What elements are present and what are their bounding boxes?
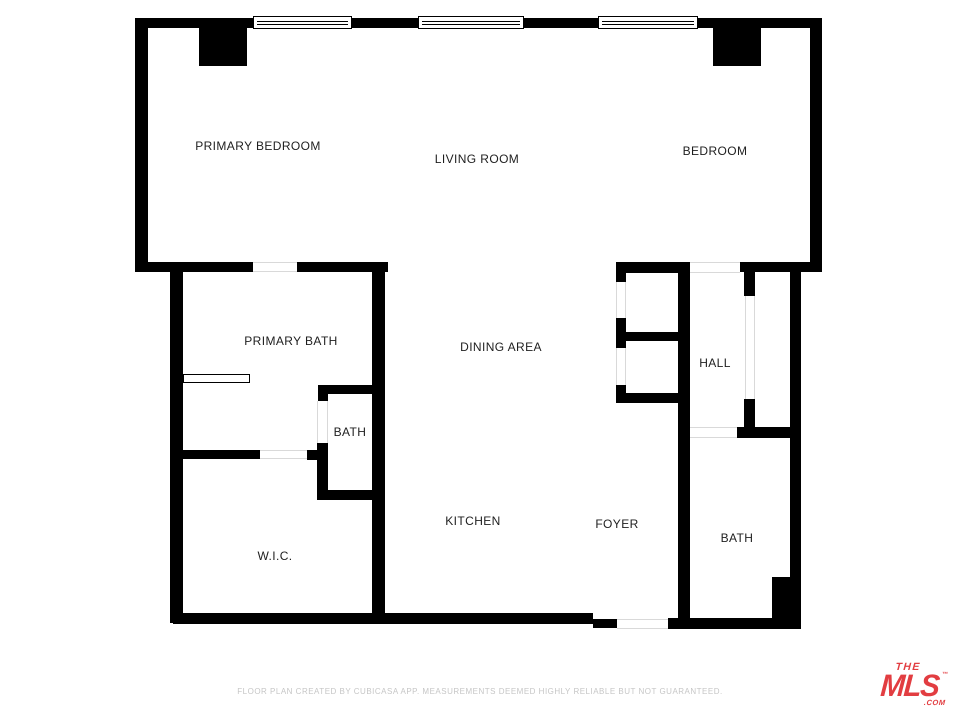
top-wall-seg3 <box>524 18 598 28</box>
room-label-primary-bath: PRIMARY BATH <box>244 334 338 348</box>
right-outer-wall <box>810 18 822 271</box>
primary-bath-bottom-seg <box>183 450 260 459</box>
mls-logo-tm: ™ <box>942 672 948 678</box>
central-vertical-wall <box>372 262 385 623</box>
hall-jamb-bottom <box>744 399 755 430</box>
room-label-primary-bedroom: PRIMARY BEDROOM <box>195 139 321 153</box>
window-bedroom-pane <box>602 21 694 22</box>
primary-bath-top-seg1 <box>135 262 253 272</box>
door-small-bath <box>317 401 328 443</box>
small-bath-top-wall <box>318 385 385 394</box>
top-wall-seg4 <box>698 18 822 28</box>
room-label-hall: HALL <box>699 356 731 370</box>
mls-logo-mls: MLS <box>880 670 940 701</box>
window-primary-bedroom <box>253 16 352 29</box>
door-primary-bath <box>253 262 297 272</box>
bath-top-wall <box>737 427 801 438</box>
entry-door-gap <box>617 619 668 629</box>
door-closet-lower <box>616 348 626 385</box>
window-primary-bedroom-pane <box>257 24 348 25</box>
pillar-bedroom <box>713 28 761 66</box>
window-primary-bedroom-pane <box>257 21 348 22</box>
closet-bottom-wall <box>616 393 678 403</box>
room-label-foyer: FOYER <box>595 517 638 531</box>
room-label-bath: BATH <box>721 531 754 545</box>
floor-plan-canvas: PRIMARY BEDROOMLIVING ROOMBEDROOMPRIMARY… <box>0 0 960 720</box>
closet-left-seg1 <box>616 262 626 282</box>
window-living-room <box>418 16 524 29</box>
bottom-wall-step <box>593 619 617 628</box>
room-label-bedroom: BEDROOM <box>683 144 748 158</box>
inner-right-wall <box>790 262 801 629</box>
closet-divider-wall <box>620 332 690 341</box>
vanity <box>183 374 250 383</box>
room-label-kitchen: KITCHEN <box>445 514 500 528</box>
bottom-wall-left <box>173 613 593 624</box>
door-closet-upper <box>616 282 626 318</box>
window-bedroom <box>598 16 698 29</box>
disclaimer-text: FLOOR PLAN CREATED BY CUBICASA APP. MEAS… <box>0 687 960 696</box>
bath-plumbing-block <box>772 577 790 629</box>
window-bedroom-pane <box>602 24 694 25</box>
floor-plan-page: PRIMARY BEDROOMLIVING ROOMBEDROOMPRIMARY… <box>0 0 960 720</box>
window-living-room-pane <box>422 21 520 22</box>
door-wic <box>260 450 307 459</box>
wic-left-wall <box>170 262 183 623</box>
room-label-w-i-c: W.I.C. <box>257 549 292 563</box>
opening-hall-closet <box>745 296 755 399</box>
window-living-room-pane <box>422 24 520 25</box>
room-label-dining-area: DINING AREA <box>460 340 542 354</box>
left-outer-wall <box>135 18 148 272</box>
top-wall-seg2 <box>352 18 418 28</box>
top-wall-seg1 <box>135 18 253 28</box>
small-bath-top-jamb <box>318 385 328 401</box>
mls-logo-com: .COM <box>924 699 946 707</box>
small-bath-bottom-wall <box>317 490 385 500</box>
mid-vertical-wall <box>678 262 690 623</box>
room-label-living-room: LIVING ROOM <box>435 152 519 166</box>
pillar-primary-bedroom <box>199 28 247 66</box>
mls-logo: THE MLS ™ .COM <box>875 657 959 717</box>
opening-hall-bath <box>690 427 737 438</box>
hall-jamb-top <box>744 262 755 296</box>
opening-living-hall <box>690 262 740 273</box>
room-label-bath: BATH <box>334 425 367 439</box>
